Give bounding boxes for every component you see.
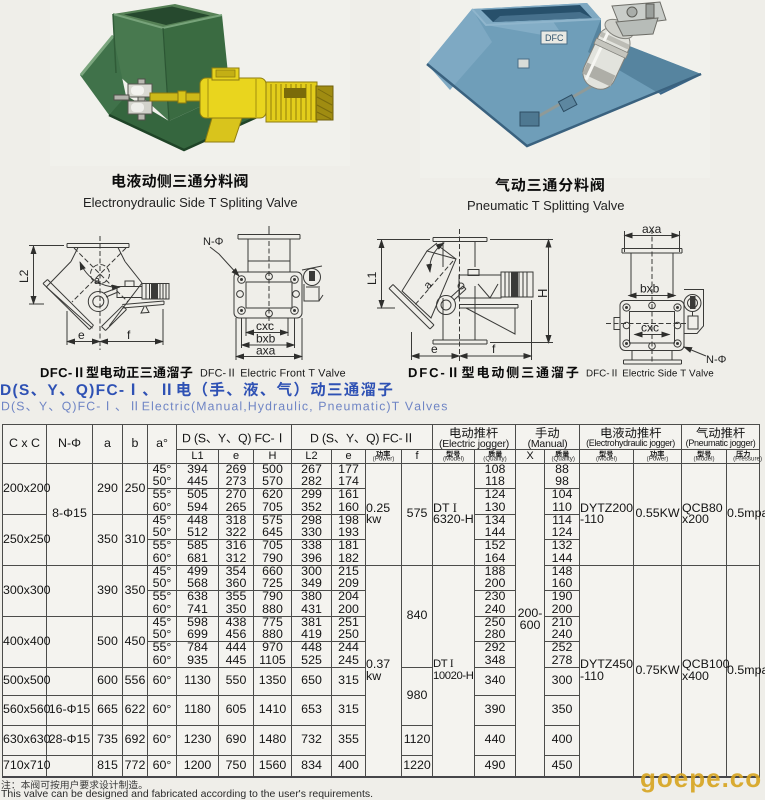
svg-text:e: e: [78, 328, 85, 342]
svg-text:N-Φ: N-Φ: [706, 354, 727, 365]
svg-text:f: f: [492, 342, 496, 356]
svg-text:cxc: cxc: [641, 321, 659, 335]
svg-text:H: H: [535, 289, 550, 298]
svg-text:a: a: [94, 275, 101, 287]
svg-text:L1: L1: [365, 271, 379, 285]
svg-text:axa: axa: [256, 344, 276, 358]
svg-text:f: f: [127, 328, 131, 342]
svg-text:e: e: [431, 342, 438, 356]
svg-text:L2: L2: [17, 269, 31, 283]
svg-text:DFC: DFC: [545, 33, 564, 43]
svg-text:N-Φ: N-Φ: [203, 236, 224, 248]
svg-text:bxb: bxb: [640, 282, 660, 296]
svg-text:a: a: [422, 278, 436, 291]
